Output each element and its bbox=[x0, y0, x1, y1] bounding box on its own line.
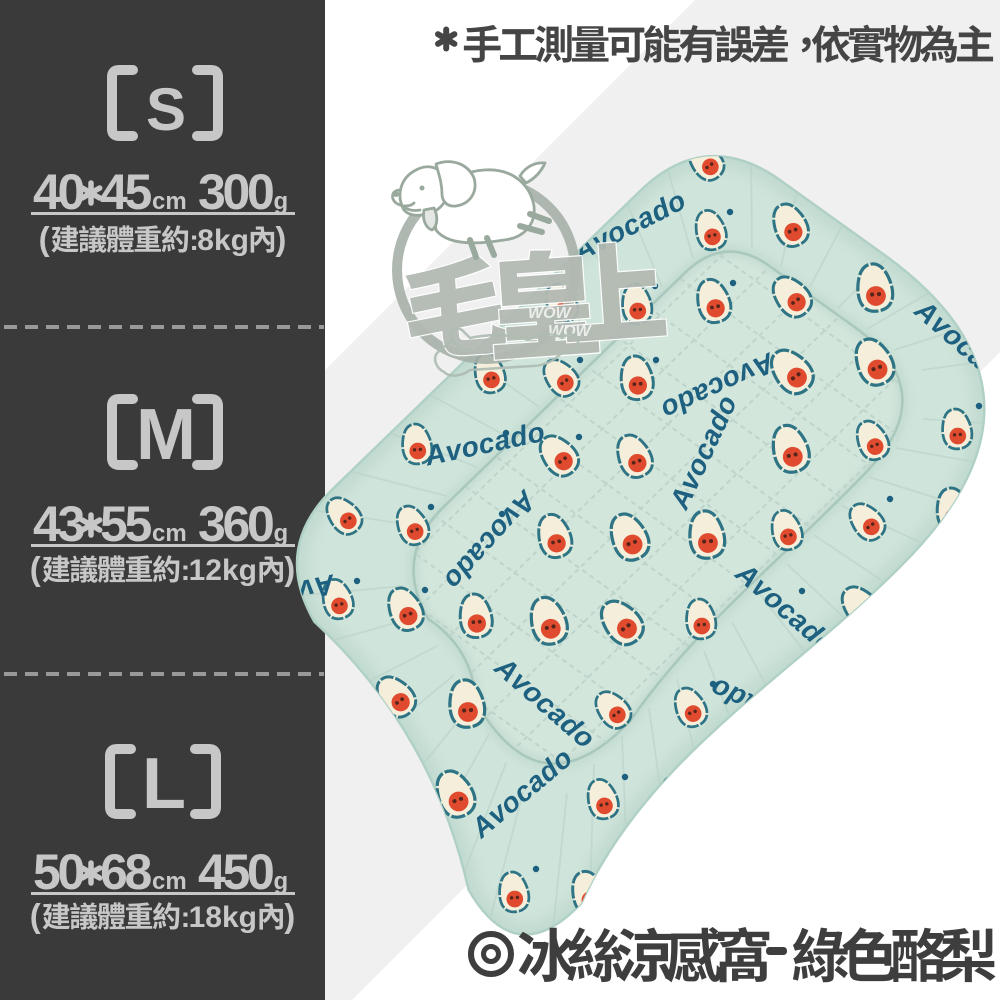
svg-text:cm: cm bbox=[152, 188, 187, 215]
svg-text:L: L bbox=[142, 744, 186, 824]
svg-text:8kg: 8kg bbox=[197, 224, 249, 257]
svg-text:cm: cm bbox=[152, 868, 187, 895]
svg-text:(: ( bbox=[30, 550, 41, 587]
svg-text:cm: cm bbox=[152, 520, 187, 547]
svg-text:): ) bbox=[284, 550, 295, 587]
svg-text:5: 5 bbox=[125, 496, 153, 552]
svg-text:g: g bbox=[274, 868, 289, 895]
svg-text:): ) bbox=[284, 897, 295, 934]
svg-text:): ) bbox=[275, 220, 286, 257]
svg-text:g: g bbox=[274, 520, 289, 547]
svg-text:S: S bbox=[146, 76, 186, 143]
svg-text:18kg: 18kg bbox=[189, 901, 257, 934]
svg-text:M: M bbox=[136, 395, 196, 475]
svg-text:(: ( bbox=[30, 897, 41, 934]
svg-text:3: 3 bbox=[58, 496, 86, 552]
svg-text:5: 5 bbox=[125, 164, 153, 220]
svg-text:0: 0 bbox=[247, 844, 275, 900]
svg-text:12kg: 12kg bbox=[189, 554, 257, 587]
svg-text:(: ( bbox=[39, 220, 50, 257]
svg-text:0: 0 bbox=[247, 164, 275, 220]
svg-text:WOW: WOW bbox=[548, 323, 593, 340]
svg-text:WOW: WOW bbox=[528, 305, 573, 322]
svg-text:0: 0 bbox=[58, 164, 86, 220]
svg-text:g: g bbox=[274, 188, 289, 215]
svg-text:0: 0 bbox=[58, 844, 86, 900]
svg-text:8: 8 bbox=[125, 844, 153, 900]
svg-text:0: 0 bbox=[247, 496, 275, 552]
